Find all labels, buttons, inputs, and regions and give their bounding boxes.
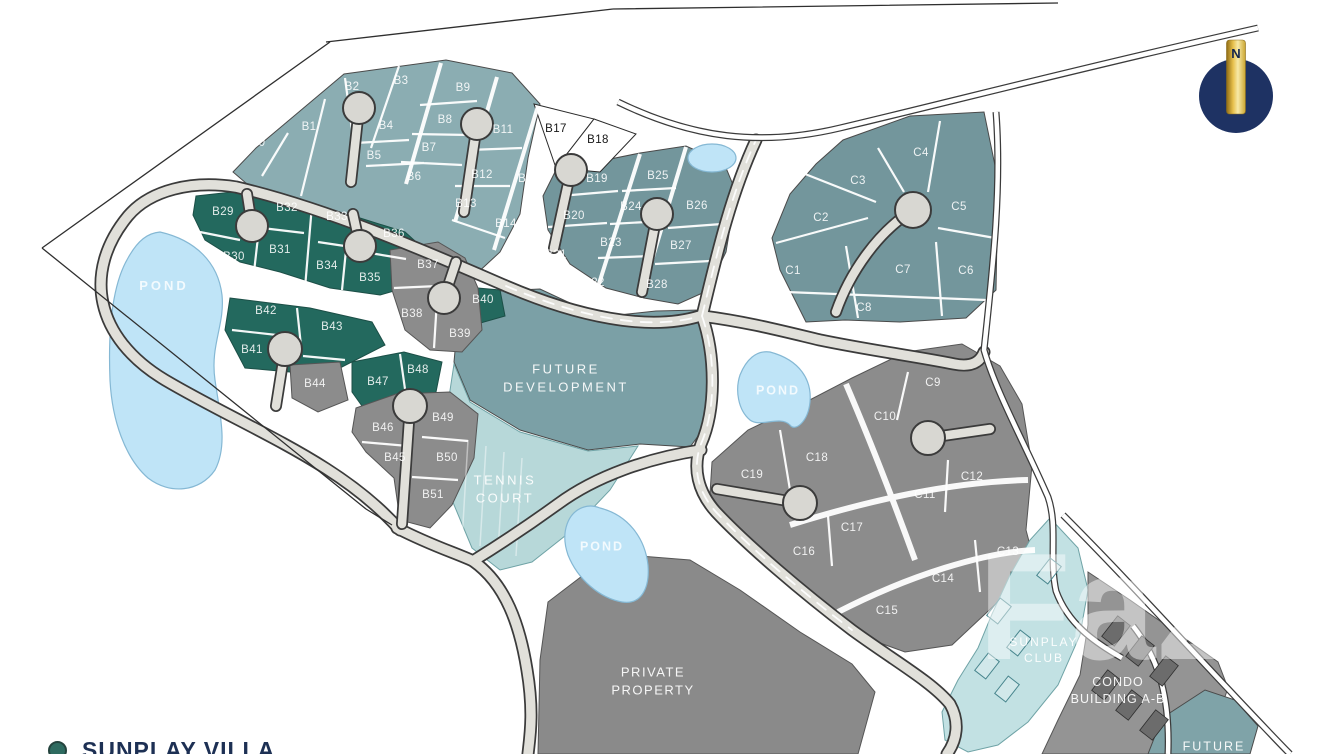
pond-east-shape	[738, 352, 811, 427]
compass-icon: N	[1199, 40, 1273, 133]
legend-villa-marker	[48, 741, 67, 754]
pond-north-shape	[688, 144, 736, 172]
site-plan: N B0B1B2B3B4B5B6B7B8B9B11B12B13B14B15B17…	[0, 0, 1342, 754]
pond-west-shape	[110, 232, 223, 489]
legend-villa-label: SUNPLAY VILLA	[82, 737, 275, 754]
legend: SUNPLAY VILLA	[48, 737, 275, 754]
zone-gray-b44	[290, 362, 348, 412]
compass-north-label: N	[1231, 46, 1240, 61]
site-plan-map: N	[0, 0, 1342, 754]
zone-c-upper	[772, 112, 998, 322]
